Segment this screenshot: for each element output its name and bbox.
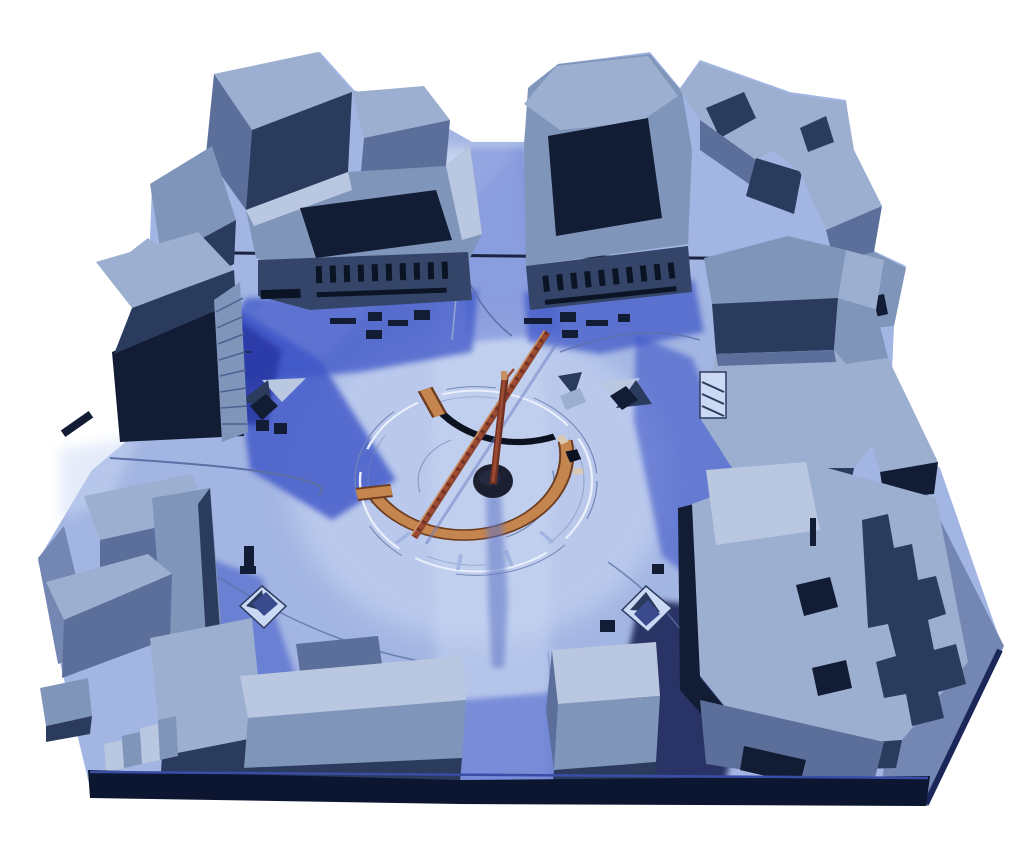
roof-slit — [810, 518, 816, 546]
west-bar — [357, 490, 392, 494]
buildings-south — [240, 636, 660, 792]
buildings-west — [96, 232, 248, 442]
mast-tip — [501, 371, 507, 380]
tan-north-segment — [560, 436, 564, 444]
black-end-segment — [571, 450, 575, 460]
model-photo — [0, 0, 1024, 858]
east-balcony — [700, 372, 726, 418]
model-photo-canvas — [0, 0, 1024, 858]
tan-end-segment — [578, 468, 579, 474]
